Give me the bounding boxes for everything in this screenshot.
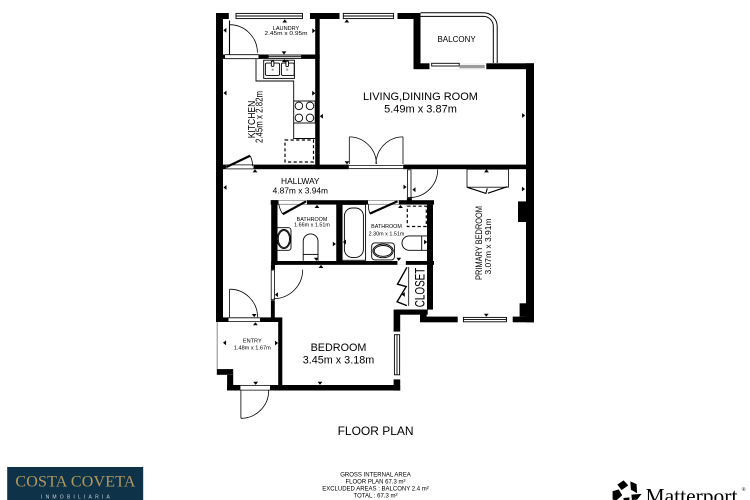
svg-text:BEDROOM: BEDROOM	[311, 342, 367, 354]
svg-text:ENTRY: ENTRY	[243, 339, 262, 345]
svg-text:GROSS INTERNAL AREA: GROSS INTERNAL AREA	[340, 472, 410, 478]
svg-text:INMOBILIARIA: INMOBILIARIA	[41, 494, 113, 500]
svg-text:EXCLUDED AREAS : BALCONY 2.4: EXCLUDED AREAS : BALCONY 2.4 m²	[322, 487, 429, 493]
svg-text:CLOSET: CLOSET	[412, 268, 427, 308]
svg-text:1.66m x 1.51m: 1.66m x 1.51m	[294, 222, 330, 228]
svg-text:Matterport: Matterport	[646, 484, 738, 500]
svg-text:5.49m x 3.87m: 5.49m x 3.87m	[384, 104, 457, 116]
svg-text:3.45m x 3.18m: 3.45m x 3.18m	[303, 354, 374, 366]
svg-text:COSTA COVETA: COSTA COVETA	[15, 474, 136, 491]
svg-text:LIVING,DINING ROOM: LIVING,DINING ROOM	[363, 91, 478, 103]
svg-text:®: ®	[742, 486, 746, 493]
svg-text:TOTAL : 67.3 m²: TOTAL : 67.3 m²	[354, 493, 398, 499]
svg-text:FLOOR PLAN: FLOOR PLAN	[338, 424, 414, 438]
svg-text:4.87m x 3.94m: 4.87m x 3.94m	[273, 186, 328, 196]
svg-text:PRIMARY BEDROOM: PRIMARY BEDROOM	[474, 206, 484, 280]
svg-text:2.45m x 2.82m: 2.45m x 2.82m	[255, 91, 266, 143]
svg-text:2.30m x 1.51m: 2.30m x 1.51m	[369, 232, 405, 238]
svg-text:BATHROOM: BATHROOM	[371, 224, 402, 230]
svg-text:1.48m x 1.67m: 1.48m x 1.67m	[234, 345, 271, 351]
svg-text:BALCONY: BALCONY	[437, 35, 476, 44]
svg-text:2.45m x 0.95m: 2.45m x 0.95m	[265, 31, 308, 37]
svg-text:3.07m x 3.91m: 3.07m x 3.91m	[484, 218, 493, 274]
svg-text:FLOOR PLAN 67.3 m²: FLOOR PLAN 67.3 m²	[345, 479, 405, 485]
